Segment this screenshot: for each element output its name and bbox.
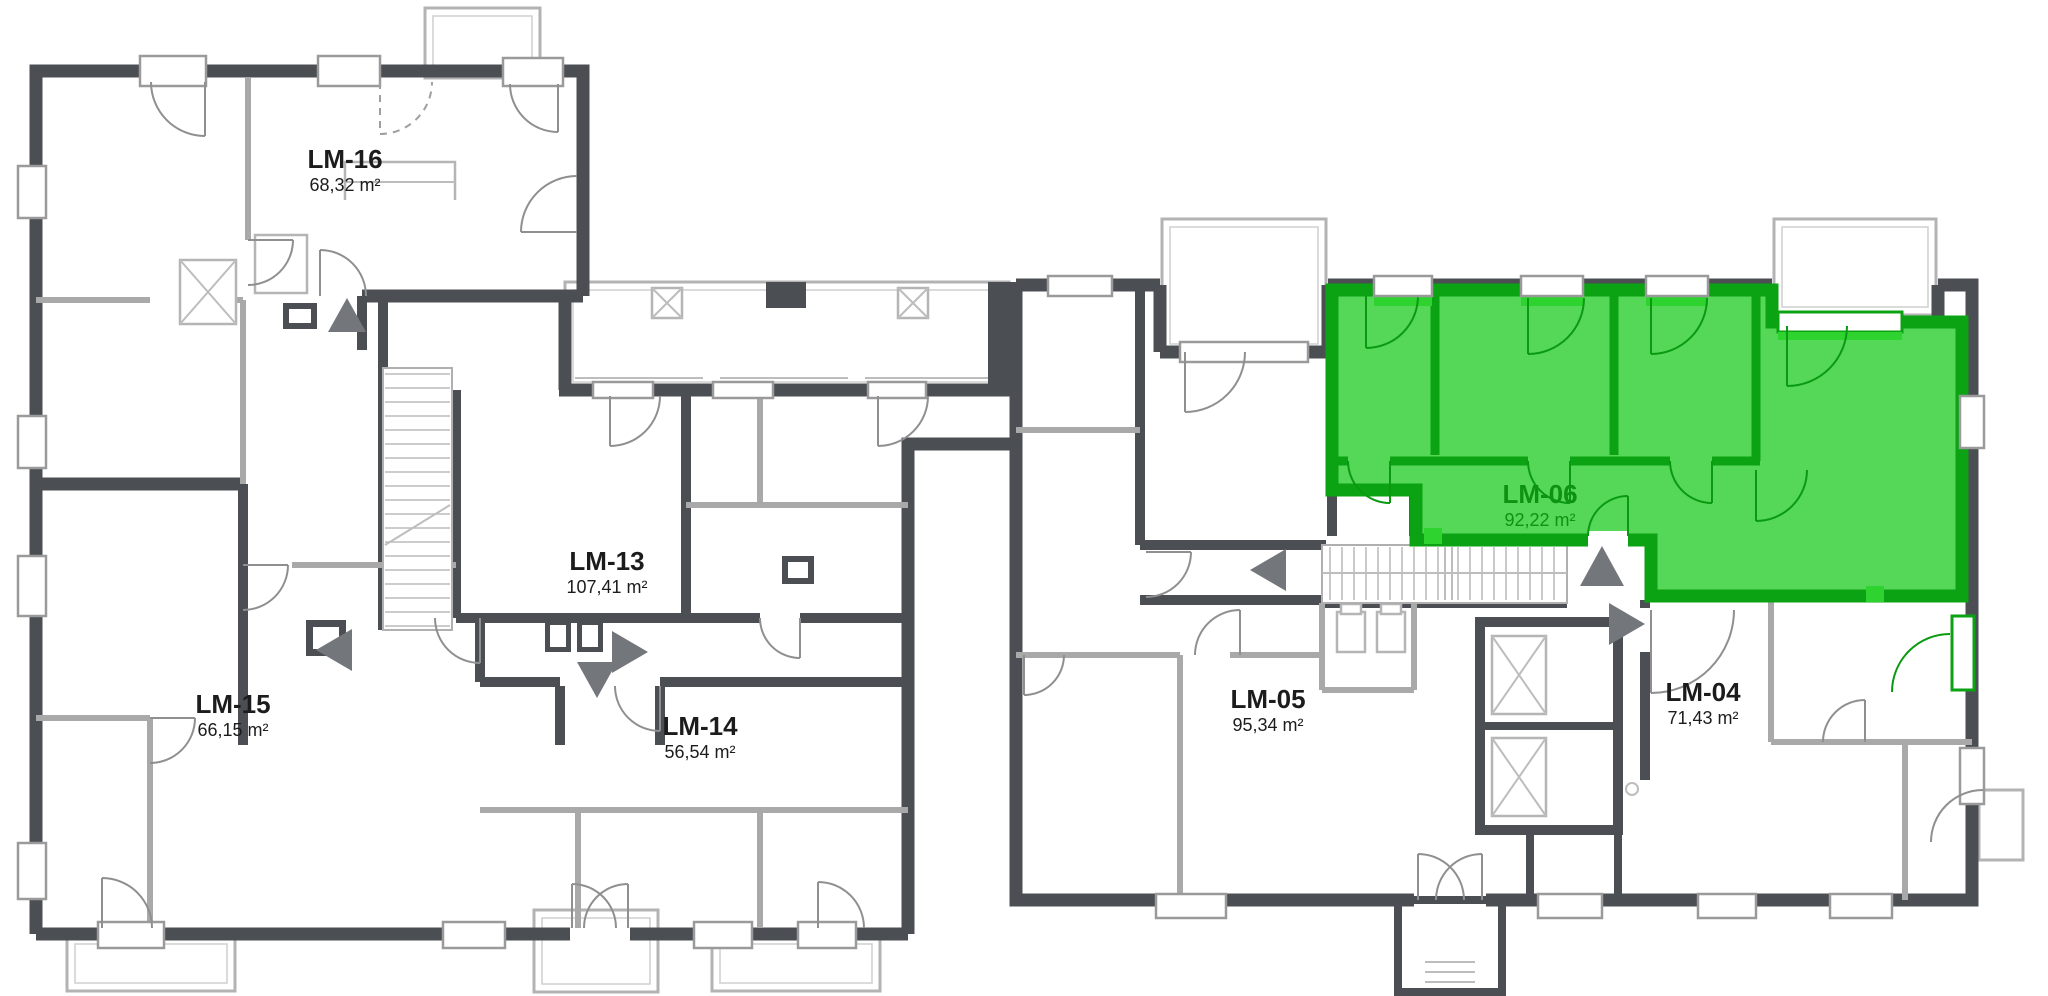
unit-label-lm-16[interactable]: LM-16 68,32 m² bbox=[307, 144, 382, 196]
unit-label-lm-13[interactable]: LM-13 107,41 m² bbox=[566, 546, 647, 598]
unit-area: 95,34 m² bbox=[1230, 714, 1305, 736]
unit-area: 71,43 m² bbox=[1665, 707, 1740, 729]
unit-label-lm-05[interactable]: LM-05 95,34 m² bbox=[1230, 684, 1305, 736]
stairs-right bbox=[1322, 545, 1567, 603]
unit-label-lm-04[interactable]: LM-04 71,43 m² bbox=[1665, 677, 1740, 729]
unit-area: 56,54 m² bbox=[662, 741, 737, 763]
unit-area: 107,41 m² bbox=[566, 576, 647, 598]
unit-name: LM-15 bbox=[195, 689, 270, 719]
unit-name: LM-06 bbox=[1502, 479, 1577, 509]
arrow-down-left-corridor bbox=[577, 662, 617, 698]
arrow-up-right-wing bbox=[1580, 546, 1624, 586]
unit-area: 92,22 m² bbox=[1502, 509, 1577, 531]
unit-label-lm-14[interactable]: LM-14 56,54 m² bbox=[662, 711, 737, 763]
unit-label-lm-06-highlighted[interactable]: LM-06 92,22 m² bbox=[1502, 479, 1577, 531]
unit-area: 68,32 m² bbox=[307, 174, 382, 196]
unit-name: LM-16 bbox=[307, 144, 382, 174]
unit-name: LM-04 bbox=[1665, 677, 1740, 707]
unit-name: LM-14 bbox=[662, 711, 737, 741]
floor-plan: LM-16 68,32 m² LM-13 107,41 m² LM-15 66,… bbox=[0, 0, 2048, 996]
arrow-right-right-corridor bbox=[1609, 603, 1645, 645]
unit-label-lm-15[interactable]: LM-15 66,15 m² bbox=[195, 689, 270, 741]
arrow-right-left-corridor bbox=[612, 631, 648, 673]
terrace bbox=[565, 282, 1018, 390]
unit-name: LM-13 bbox=[566, 546, 647, 576]
unit-name: LM-05 bbox=[1230, 684, 1305, 714]
unit-area: 66,15 m² bbox=[195, 719, 270, 741]
arrow-left-right-corridor bbox=[1250, 549, 1286, 591]
unit-lm-06-region[interactable] bbox=[1332, 290, 1974, 692]
stairs-left bbox=[383, 368, 452, 630]
